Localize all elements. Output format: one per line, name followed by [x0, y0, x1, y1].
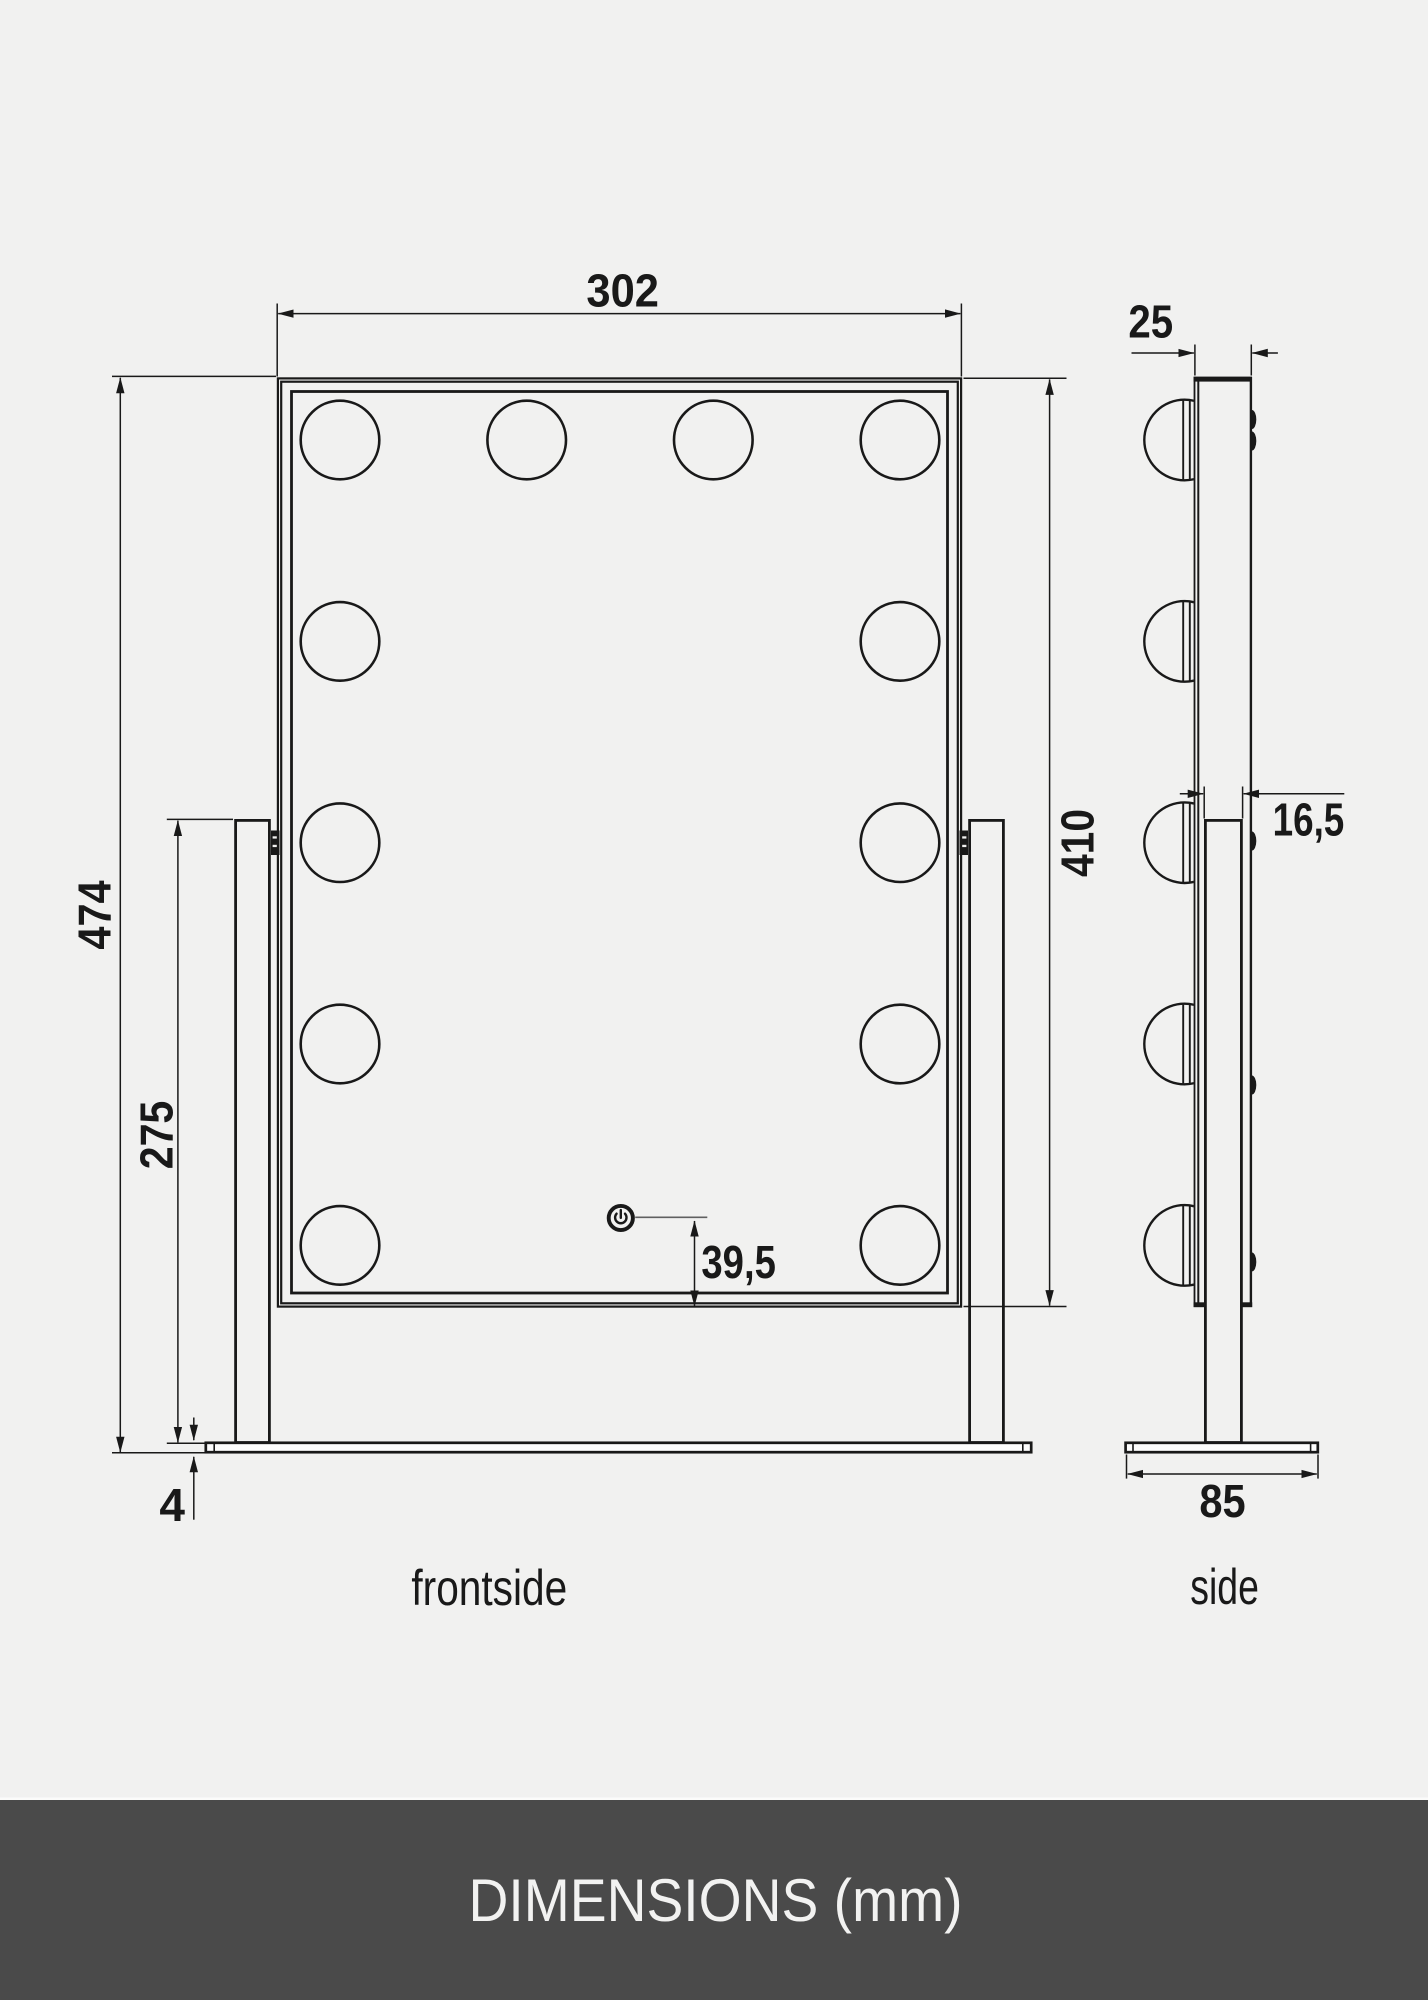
- svg-text:frontside: frontside: [411, 1560, 567, 1616]
- svg-text:474: 474: [68, 880, 120, 950]
- svg-text:39,5: 39,5: [701, 1236, 776, 1288]
- svg-text:410: 410: [1052, 809, 1104, 877]
- svg-text:DIMENSIONS (mm): DIMENSIONS (mm): [469, 1867, 963, 1934]
- svg-text:25: 25: [1128, 296, 1173, 348]
- svg-text:85: 85: [1199, 1475, 1245, 1527]
- svg-text:4: 4: [159, 1479, 185, 1531]
- svg-text:side: side: [1190, 1559, 1259, 1615]
- svg-text:275: 275: [130, 1101, 182, 1170]
- svg-text:302: 302: [586, 264, 659, 316]
- svg-text:16,5: 16,5: [1273, 794, 1345, 846]
